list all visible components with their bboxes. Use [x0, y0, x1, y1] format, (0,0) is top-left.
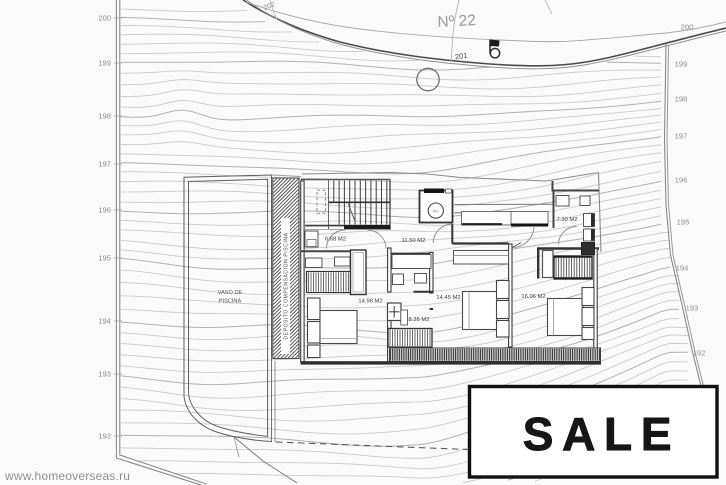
svg-text:194: 194: [98, 317, 111, 326]
svg-text:14.45 M2: 14.45 M2: [436, 295, 460, 301]
svg-text:194: 194: [676, 264, 689, 273]
svg-text:196: 196: [98, 206, 111, 215]
svg-text:14.98 M2: 14.98 M2: [358, 299, 382, 305]
svg-text:Nº 22: Nº 22: [437, 12, 476, 31]
svg-text:16.06 M2: 16.06 M2: [521, 294, 545, 300]
svg-text:197: 197: [98, 160, 111, 169]
svg-text:8.35 M2: 8.35 M2: [409, 317, 430, 323]
svg-text:198: 198: [675, 95, 688, 104]
svg-text:199: 199: [98, 59, 111, 68]
svg-text:VASO DE: VASO DE: [218, 290, 243, 296]
svg-text:7.30 M2: 7.30 M2: [557, 217, 578, 223]
svg-text:192: 192: [693, 349, 706, 358]
svg-text:195: 195: [677, 218, 690, 227]
svg-text:6.68 M2: 6.68 M2: [325, 237, 346, 243]
svg-text:SALE: SALE: [523, 408, 680, 460]
svg-text:DEPOSITO COMPENSACION PISCINA: DEPOSITO COMPENSACION PISCINA: [284, 232, 290, 339]
svg-text:196: 196: [675, 176, 688, 185]
svg-text:198: 198: [98, 112, 111, 121]
svg-text:197: 197: [675, 132, 688, 141]
svg-text:195: 195: [98, 254, 111, 263]
svg-text:193: 193: [98, 370, 111, 379]
svg-text:200: 200: [98, 14, 111, 23]
svg-text:193: 193: [686, 304, 699, 313]
svg-text:PISCINA: PISCINA: [219, 299, 242, 305]
svg-text:WC: WC: [432, 208, 439, 213]
svg-text:199: 199: [675, 60, 688, 69]
svg-text:201: 201: [454, 51, 468, 61]
svg-text:11.50 M2: 11.50 M2: [402, 238, 426, 244]
svg-text:www.homeoverseas.ru: www.homeoverseas.ru: [4, 469, 130, 483]
svg-text:192: 192: [98, 432, 111, 441]
svg-text:200: 200: [681, 23, 694, 32]
